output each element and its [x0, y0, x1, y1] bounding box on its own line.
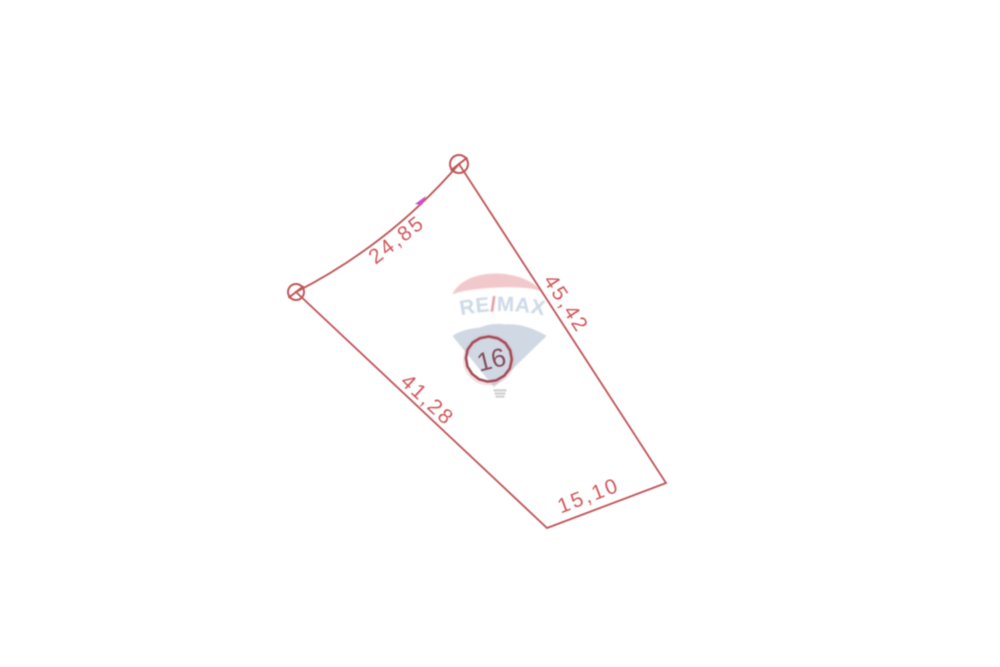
svg-text:41,28: 41,28 [396, 370, 459, 431]
svg-text:24,85: 24,85 [364, 211, 429, 269]
svg-text:RE/MAX: RE/MAX [458, 293, 548, 320]
